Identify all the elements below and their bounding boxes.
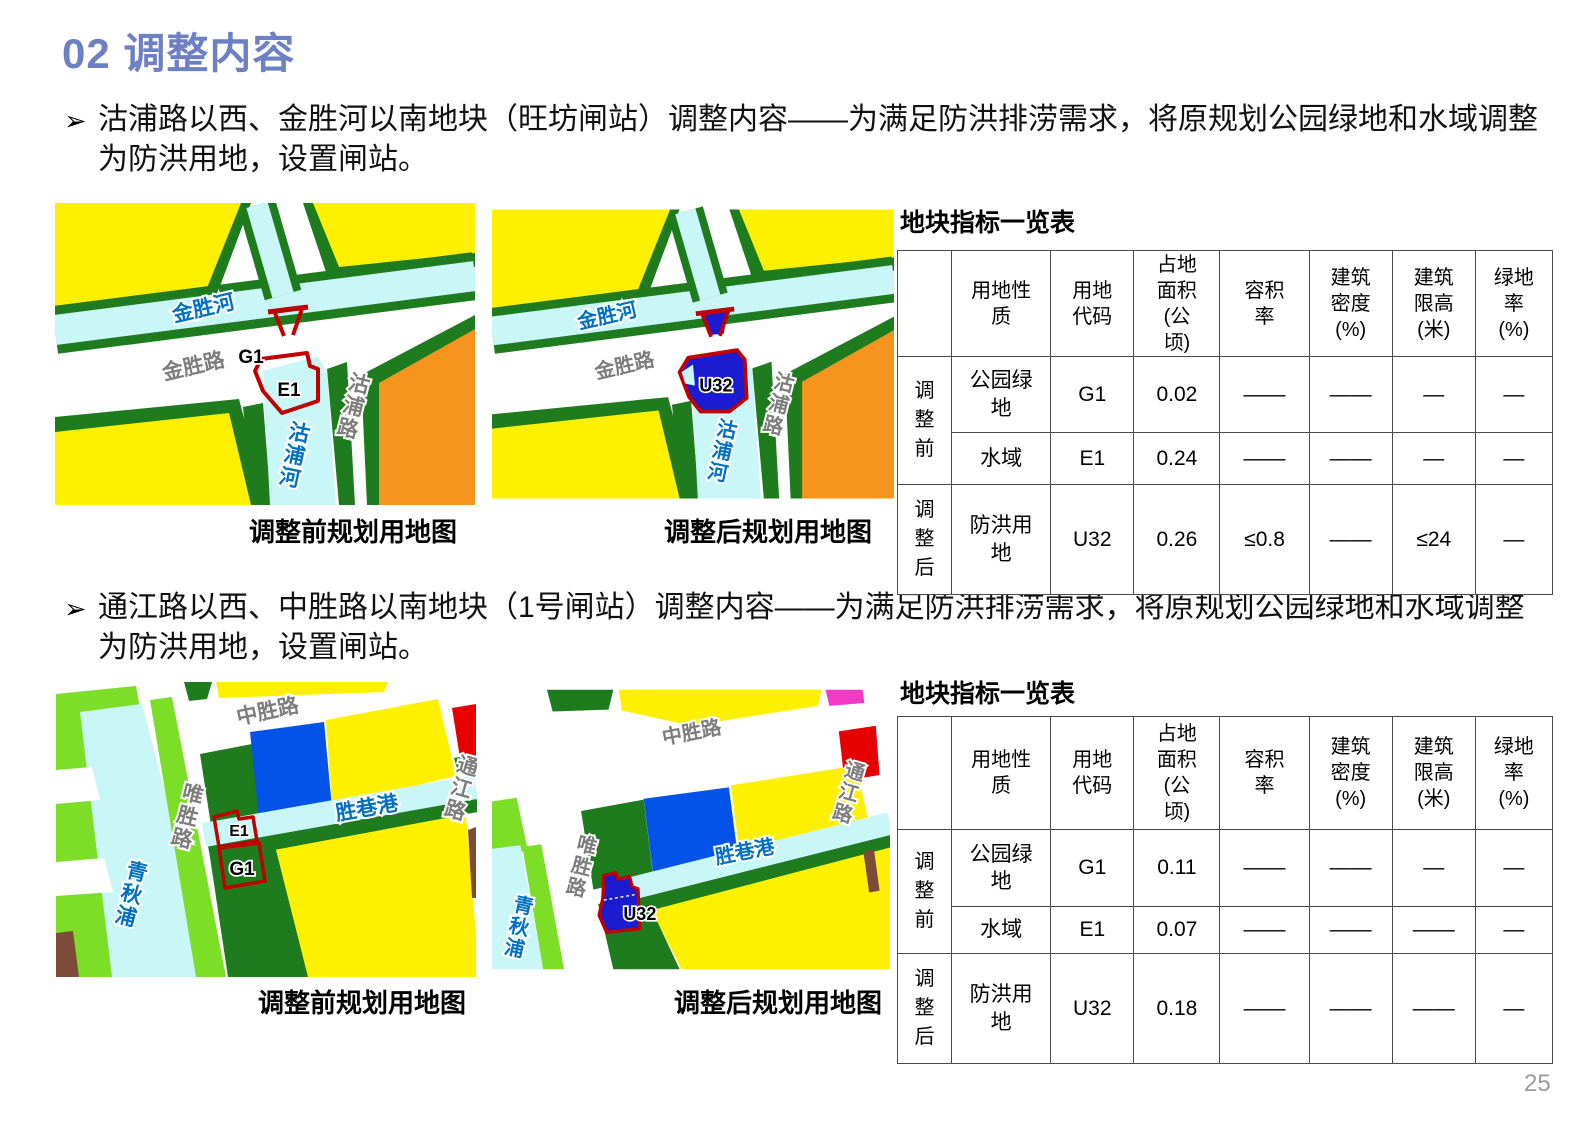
indicator-table-wrap-2: 用地性质用地代码占地面积(公顷)容积率建筑密度(%)建筑限高(米)绿地率(%)调… [897, 716, 1553, 1064]
header-cell: 建筑限高(米) [1392, 717, 1475, 830]
header-cell: 容积率 [1220, 251, 1309, 357]
bullet-text: 通江路以西、中胜路以南地块（1号闸站）调整内容——为满足防洪排涝需求，将原规划公… [98, 588, 1542, 668]
cell: G1 [1051, 830, 1134, 907]
header-cell [898, 251, 952, 357]
cell: — [1475, 954, 1552, 1064]
map-before-no1: 中胜路 唯胜路 通江路 青秋浦 胜巷港 E1 G1 [55, 682, 477, 977]
map-caption: 调整后规划用地图 [658, 983, 898, 1020]
bullet-point-1: ➢ 沽浦路以西、金胜河以南地块（旺坊闸站）调整内容——为满足防洪排涝需求，将原规… [64, 100, 1542, 180]
parcel-code-label: U32 [699, 375, 732, 395]
row-group-label: 调整后 [898, 485, 952, 595]
cell: ≤0.8 [1220, 485, 1309, 595]
cell: — [1475, 357, 1552, 433]
map-caption: 调整后规划用地图 [648, 512, 888, 549]
header-cell: 占地面积(公顷) [1134, 251, 1220, 357]
landuse-map-svg: 金胜河 金胜路 U32 沽浦路 沽浦河 [492, 203, 894, 505]
land-block [826, 690, 865, 706]
header-cell: 容积率 [1220, 717, 1309, 830]
row-group-label: 调整后 [898, 954, 952, 1064]
cell: —— [1309, 433, 1392, 485]
map-after-no1: 中胜路 唯胜路 通江路 青秋浦 胜巷港 U32 [492, 682, 890, 977]
row-group-label: 调整前 [898, 830, 952, 954]
parcel-code-label: G1 [229, 859, 255, 880]
header-cell: 绿地率(%) [1475, 717, 1552, 830]
cell: 0.07 [1134, 907, 1220, 954]
cell: U32 [1051, 485, 1134, 595]
cell: —— [1309, 954, 1392, 1064]
bullet-point-2: ➢ 通江路以西、中胜路以南地块（1号闸站）调整内容——为满足防洪排涝需求，将原规… [64, 588, 1542, 668]
map-before-wangfang: 金胜河 金胜路 G1 E1 沽浦路 沽浦河 [55, 203, 475, 505]
cell: —— [1309, 357, 1392, 433]
cell: E1 [1051, 907, 1134, 954]
cell: U32 [1051, 954, 1134, 1064]
cell: —— [1220, 357, 1309, 433]
parcel-code-label: E1 [277, 380, 301, 401]
landuse-map-svg: 金胜河 金胜路 G1 E1 沽浦路 沽浦河 [55, 203, 475, 505]
cell: 0.02 [1134, 357, 1220, 433]
cell: 0.26 [1134, 485, 1220, 595]
cell: 0.24 [1134, 433, 1220, 485]
cell: —— [1309, 907, 1392, 954]
bullet-arrow-icon: ➢ [64, 100, 98, 180]
cell: —— [1220, 830, 1309, 907]
cell: — [1392, 830, 1475, 907]
landuse-map-svg: 中胜路 唯胜路 通江路 青秋浦 胜巷港 E1 G1 [55, 682, 477, 977]
landuse-map-svg: 中胜路 唯胜路 通江路 青秋浦 胜巷港 U32 [492, 682, 890, 977]
map-caption: 调整前规划用地图 [233, 512, 473, 549]
cell: —— [1220, 433, 1309, 485]
cell: G1 [1051, 357, 1134, 433]
parcel-code-label: E1 [229, 823, 249, 840]
header-cell: 建筑密度(%) [1309, 251, 1392, 357]
row-group-label: 调整前 [898, 357, 952, 485]
cell: — [1475, 830, 1552, 907]
cell: ≤24 [1392, 485, 1475, 595]
cell: E1 [1051, 433, 1134, 485]
table-title: 地块指标一览表 [900, 203, 1075, 239]
cell: 防洪用地 [952, 485, 1051, 595]
table-title: 地块指标一览表 [900, 674, 1075, 710]
parcel-code-label: U32 [623, 904, 656, 924]
bullet-text: 沽浦路以西、金胜河以南地块（旺坊闸站）调整内容——为满足防洪排涝需求，将原规划公… [98, 100, 1542, 180]
cell: 水域 [952, 433, 1051, 485]
header-cell: 绿地率(%) [1475, 251, 1552, 357]
page-title: 02 调整内容 [62, 20, 295, 81]
header-cell: 用地代码 [1051, 251, 1134, 357]
map-after-wangfang: 金胜河 金胜路 U32 沽浦路 沽浦河 [492, 203, 894, 505]
cell: —— [1392, 907, 1475, 954]
cell: 公园绿地 [952, 357, 1051, 433]
cell: —— [1309, 830, 1392, 907]
parcel-code-label: G1 [238, 347, 264, 368]
header-cell [898, 717, 952, 830]
cell: 防洪用地 [952, 954, 1051, 1064]
indicator-table-wrap-1: 用地性质用地代码占地面积(公顷)容积率建筑密度(%)建筑限高(米)绿地率(%)调… [897, 250, 1553, 595]
cell: —— [1309, 485, 1392, 595]
header-cell: 用地代码 [1051, 717, 1134, 830]
indicator-table: 用地性质用地代码占地面积(公顷)容积率建筑密度(%)建筑限高(米)绿地率(%)调… [897, 716, 1553, 1064]
bullet-arrow-icon: ➢ [64, 588, 98, 668]
cell: 公园绿地 [952, 830, 1051, 907]
header-cell: 用地性质 [952, 251, 1051, 357]
header-cell: 建筑密度(%) [1309, 717, 1392, 830]
cell: 0.11 [1134, 830, 1220, 907]
cell: —— [1220, 907, 1309, 954]
cell: — [1392, 433, 1475, 485]
cell: — [1475, 907, 1552, 954]
land-block [547, 690, 613, 712]
header-cell: 占地面积(公顷) [1134, 717, 1220, 830]
cell: — [1475, 485, 1552, 595]
header-cell: 建筑限高(米) [1392, 251, 1475, 357]
cell: 0.18 [1134, 954, 1220, 1064]
header-cell: 用地性质 [952, 717, 1051, 830]
cell: —— [1392, 954, 1475, 1064]
cell: 水域 [952, 907, 1051, 954]
cell: — [1392, 357, 1475, 433]
map-caption: 调整前规划用地图 [242, 983, 482, 1020]
cell: — [1475, 433, 1552, 485]
indicator-table: 用地性质用地代码占地面积(公顷)容积率建筑密度(%)建筑限高(米)绿地率(%)调… [897, 250, 1553, 595]
cell: —— [1220, 954, 1309, 1064]
page-number: 25 [1524, 1070, 1551, 1098]
